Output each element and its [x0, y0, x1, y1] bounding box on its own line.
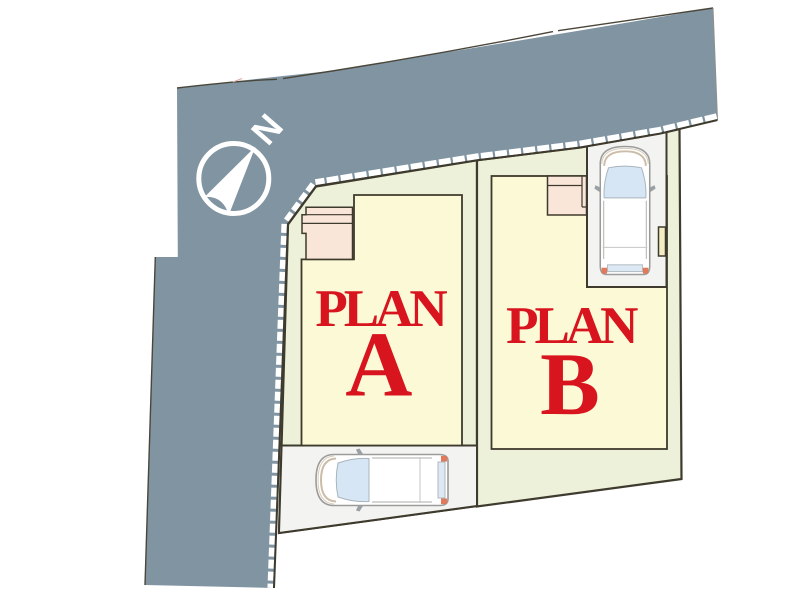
svg-text:A: A: [345, 314, 412, 417]
svg-text:B: B: [540, 335, 600, 434]
